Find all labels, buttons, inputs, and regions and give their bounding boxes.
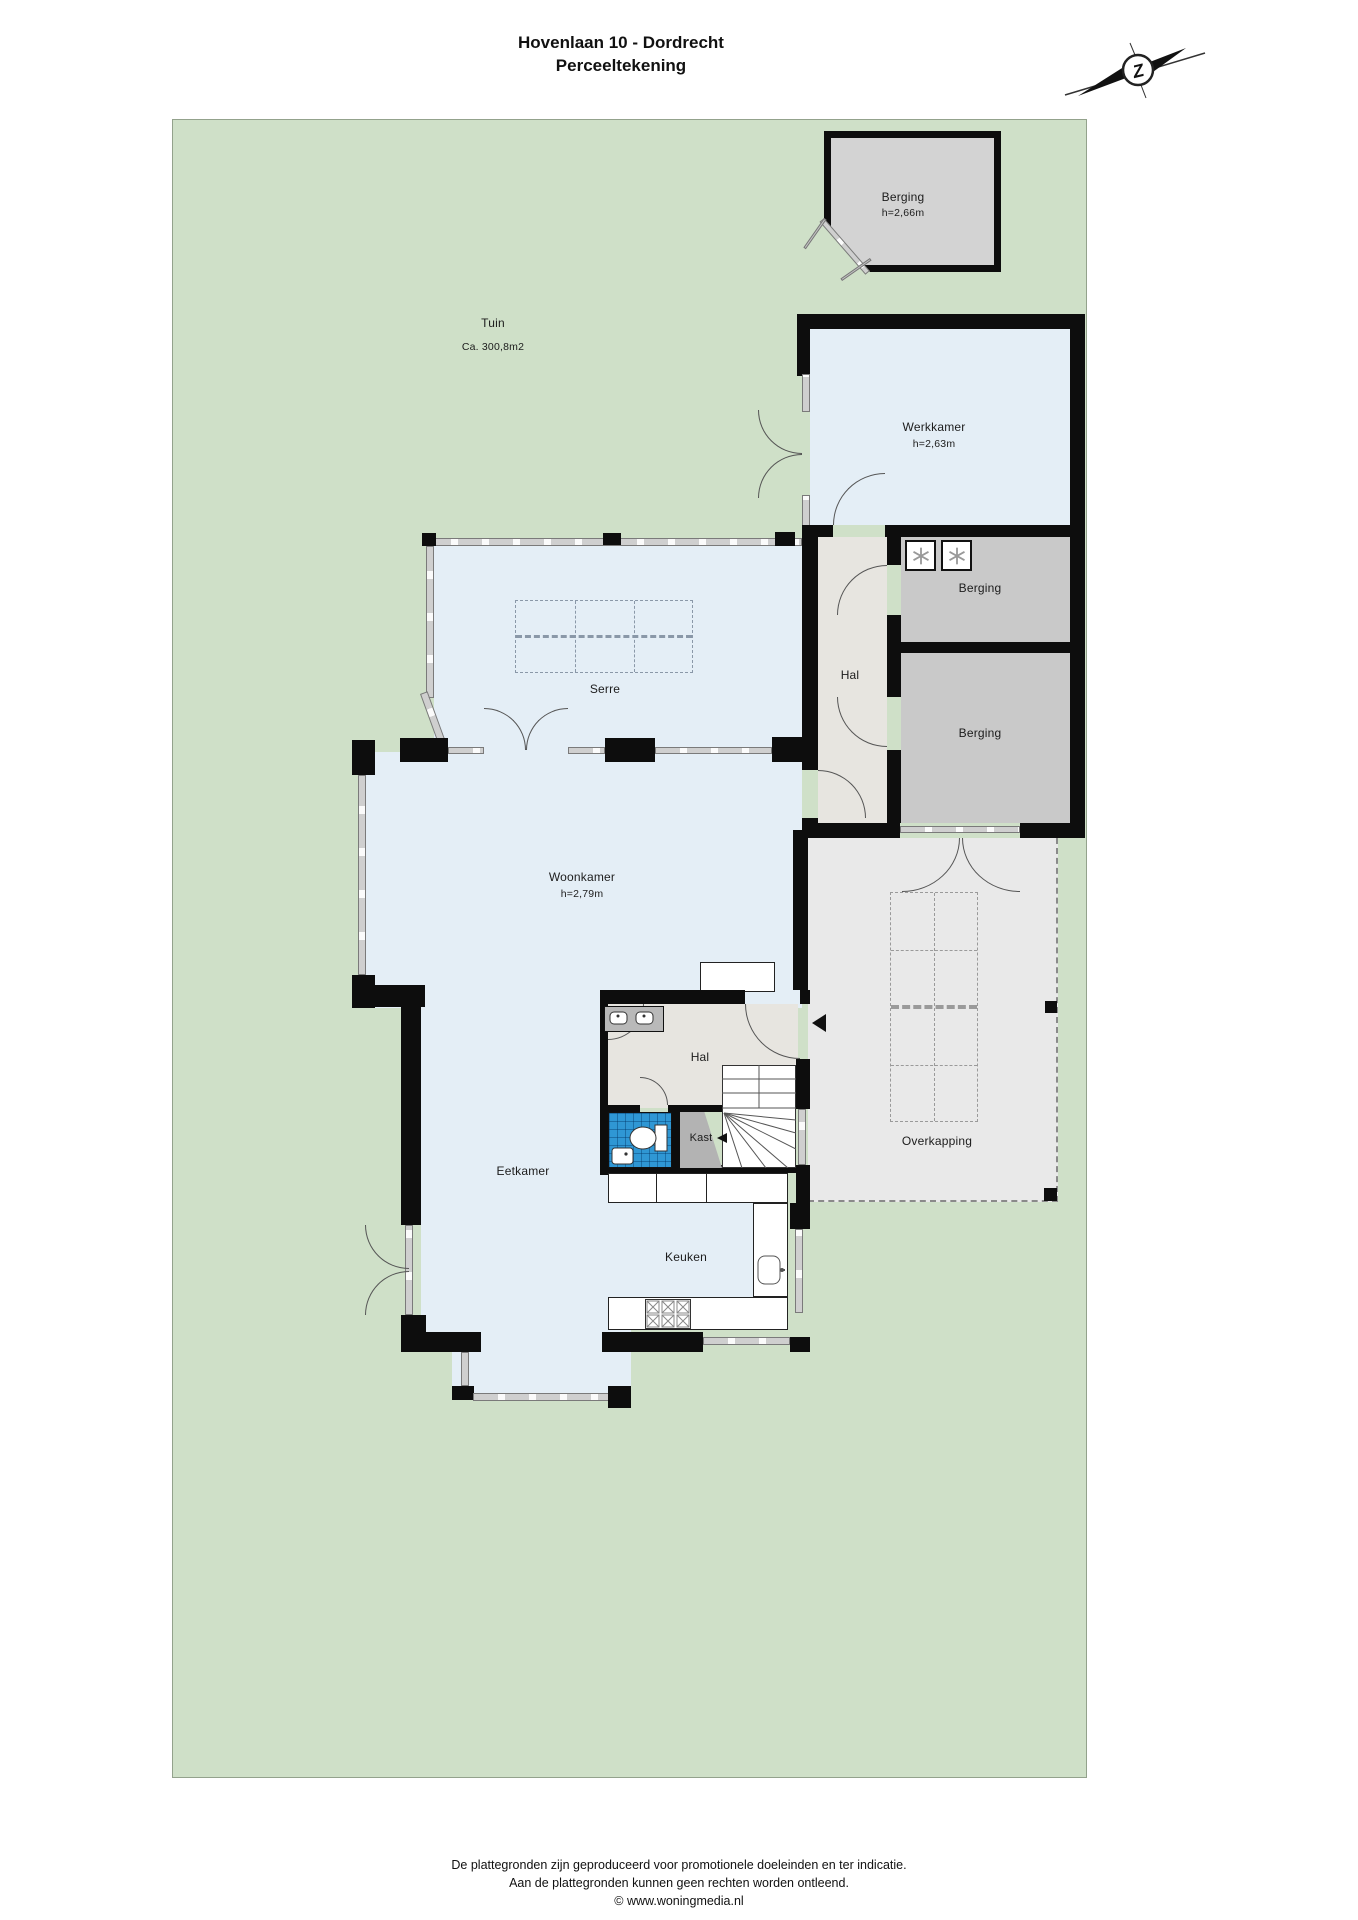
wall-segment xyxy=(602,1332,703,1352)
woonkamer-label: Woonkamer xyxy=(549,870,615,884)
hal-upper-label: Hal xyxy=(841,668,860,682)
wall-post xyxy=(352,740,375,775)
wall-segment xyxy=(887,615,901,697)
pergola-grid xyxy=(890,892,978,1122)
hal-lower-label: Hal xyxy=(691,1050,710,1064)
eetkamer-label: Eetkamer xyxy=(497,1164,550,1178)
wall-segment xyxy=(885,525,1070,537)
wall-post xyxy=(775,532,795,546)
staircase xyxy=(722,1065,796,1168)
wall-segment xyxy=(802,525,833,537)
compass-icon: Z xyxy=(1060,34,1210,106)
wall-segment xyxy=(672,1112,680,1168)
wall-segment xyxy=(796,1059,810,1109)
wall-segment xyxy=(797,314,810,376)
washbasin-counter xyxy=(604,1006,664,1032)
wall-segment xyxy=(887,750,901,823)
footer-line-1: De plattegronden zijn geproduceerd voor … xyxy=(0,1856,1358,1874)
toilet-room xyxy=(608,1112,672,1168)
footer-disclaimer: De plattegronden zijn geproduceerd voor … xyxy=(0,1856,1358,1910)
toilet-icon xyxy=(609,1113,671,1167)
window-strip xyxy=(795,1229,803,1313)
wall-segment xyxy=(410,1332,481,1352)
window-strip xyxy=(358,775,366,975)
kitchen-counter-bottom xyxy=(608,1297,788,1330)
wall-segment xyxy=(1070,314,1085,838)
wall-post xyxy=(603,533,621,545)
berging-1-label: Berging xyxy=(959,581,1002,595)
window-strip xyxy=(703,1337,790,1345)
entrance-arrow-icon xyxy=(812,1014,826,1032)
wall-segment xyxy=(668,1105,722,1112)
werkkamer-label: Werkkamer xyxy=(903,420,966,434)
overkapping-post xyxy=(1044,1188,1057,1201)
wall-segment xyxy=(401,985,421,1225)
wall-post xyxy=(608,1386,631,1408)
wall-segment xyxy=(600,990,745,1004)
shed-label: Berging xyxy=(882,190,925,204)
page-title: Hovenlaan 10 - Dordrecht xyxy=(518,33,724,53)
woonkamer-height-label: h=2,79m xyxy=(561,888,604,900)
kitchen-counter-top xyxy=(608,1173,788,1203)
serre-roof-window xyxy=(515,600,693,673)
wall-segment xyxy=(772,737,802,762)
kast-label: Kast xyxy=(690,1132,713,1144)
wall-segment xyxy=(800,990,810,1004)
wall-segment xyxy=(887,537,901,565)
stairs-direction-arrow xyxy=(717,1133,727,1143)
garden-area-label: Ca. 300,8m2 xyxy=(462,341,524,353)
wall-segment xyxy=(802,823,900,838)
berging-2-label: Berging xyxy=(959,726,1002,740)
wall-post xyxy=(790,1337,810,1352)
wall-segment xyxy=(608,1105,640,1112)
overkapping-post xyxy=(1045,1001,1057,1013)
dryer-icon xyxy=(941,540,972,571)
wall-segment xyxy=(797,314,1085,329)
kitchen-counter-right xyxy=(753,1203,788,1297)
window-strip xyxy=(900,826,1020,833)
page-subtitle: Perceeltekening xyxy=(556,56,686,76)
floorplan-page: Hovenlaan 10 - Dordrecht Perceeltekening… xyxy=(0,0,1358,1920)
window-strip xyxy=(426,546,434,698)
wall-segment xyxy=(605,738,655,762)
wall-segment xyxy=(400,738,448,762)
window-strip xyxy=(655,747,772,754)
window-strip xyxy=(568,747,605,754)
stove-icon xyxy=(645,1299,691,1329)
wall-post xyxy=(452,1386,474,1400)
window-strip xyxy=(461,1352,469,1386)
wall-post xyxy=(422,533,436,546)
footer-line-2: Aan de plattegronden kunnen geen rechten… xyxy=(0,1874,1358,1892)
serre-label: Serre xyxy=(590,682,620,696)
sideboard xyxy=(700,962,775,992)
window-strip xyxy=(448,747,484,754)
window-strip xyxy=(802,374,810,412)
shed-height-label: h=2,66m xyxy=(882,207,925,219)
wall-segment xyxy=(1020,823,1070,838)
footer-copyright: © www.woningmedia.nl xyxy=(0,1892,1358,1910)
wall-segment xyxy=(802,537,818,770)
washer-icon xyxy=(905,540,936,571)
wall-post xyxy=(790,1203,810,1229)
keuken-label: Keuken xyxy=(665,1250,707,1264)
window-strip xyxy=(473,1393,609,1401)
werkkamer-height-label: h=2,63m xyxy=(913,438,956,450)
window-strip xyxy=(798,1109,806,1165)
wall-segment xyxy=(887,642,1070,653)
overkapping-label: Overkapping xyxy=(902,1134,972,1148)
wall-segment xyxy=(793,830,808,990)
kitchen-sink-icon xyxy=(754,1204,786,1294)
garden-label: Tuin xyxy=(481,316,505,330)
